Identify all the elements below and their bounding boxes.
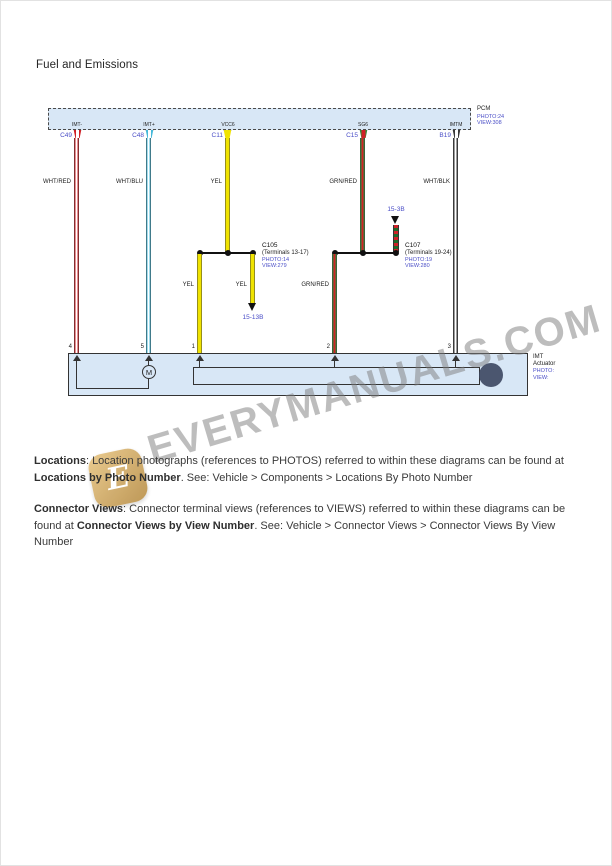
terminal-icon [452, 130, 461, 138]
terminal-icon [73, 130, 82, 138]
note-segment: : Location photographs (references to PH… [86, 455, 564, 467]
wire-yel-to-ref [250, 254, 255, 304]
wire-grn-red-dashed [393, 225, 399, 252]
manual-page: Fuel and Emissions PCM PHOTO:24 VIEW:308… [0, 0, 612, 866]
connector-c107-terminals: (Terminals 19-24) [405, 250, 452, 257]
pcm-pin-signal: IMTM [441, 122, 471, 128]
connector-c105-terminals: (Terminals 13-17) [262, 250, 309, 257]
actuator-photo-ref[interactable]: PHOTO: [533, 368, 555, 375]
wire-yel-branch [197, 254, 202, 353]
wire-yel [225, 138, 230, 252]
wire-color-label: GRN/RED [289, 282, 329, 289]
note-segment: Locations [34, 455, 86, 467]
connector-label-b19[interactable]: B19 [423, 132, 451, 140]
wire-color-label: WHT/BLU [99, 179, 143, 186]
note-connector-views: Connector Views: Connector terminal view… [34, 501, 586, 551]
connector-c107-name: C107 [405, 242, 452, 250]
pcm-pin-signal: IMT+ [134, 122, 164, 128]
connector-label-c15[interactable]: C15 [330, 132, 358, 140]
connector-c107-view-ref[interactable]: VIEW:280 [405, 263, 452, 270]
note-segment: Connector Views [34, 503, 123, 515]
internal-line [148, 379, 149, 389]
note-segment: . See: Vehicle > Components > Locations … [181, 472, 473, 484]
wire-color-label: YEL [207, 282, 247, 289]
connector-label-c11[interactable]: C11 [195, 132, 223, 140]
wire-color-label: YEL [154, 282, 194, 289]
connector-label-c49[interactable]: C49 [44, 132, 72, 140]
pcm-pin-signal: SG6 [348, 122, 378, 128]
page-ref-15-3b[interactable]: 15-3B [382, 206, 410, 214]
internal-line [76, 361, 77, 389]
actuator-name-line2: Actuator [533, 361, 555, 368]
connector-c105-name: C105 [262, 242, 309, 250]
wire-wht-blu [146, 138, 151, 353]
connector-label-c48[interactable]: C48 [116, 132, 144, 140]
junction-dot [360, 250, 366, 256]
actuator-pin-number: 2 [318, 344, 330, 351]
page-ref-arrow-icon [248, 303, 256, 311]
page-ref-15-13b[interactable]: 15-13B [234, 314, 272, 322]
note-segment: Locations by Photo Number [34, 472, 181, 484]
note-locations: Locations: Location photographs (referen… [34, 453, 586, 486]
pcm-box [48, 108, 471, 130]
wire-wht-red [74, 138, 79, 353]
wire-grn-red [360, 138, 365, 252]
pcm-label: PCM [477, 106, 490, 113]
connector-c107-label: C107 (Terminals 19-24) PHOTO:19 VIEW:280 [405, 242, 452, 270]
pcm-pin-signal: VCC6 [213, 122, 243, 128]
actuator-pin-number: 1 [183, 344, 195, 351]
wire-color-label: GRN/RED [313, 179, 357, 186]
motor-icon: M [142, 365, 156, 379]
wire-color-label: WHT/BLK [406, 179, 450, 186]
internal-line [76, 388, 149, 389]
terminal-icon [145, 130, 154, 138]
wire-color-label: YEL [178, 179, 222, 186]
pcm-pin-signal: IMT- [62, 122, 92, 128]
connector-c105-label: C105 (Terminals 13-17) PHOTO:14 VIEW:279 [262, 242, 309, 270]
wire-wht-blk [453, 138, 458, 353]
wire-color-label: WHT/RED [27, 179, 71, 186]
pcm-view-ref[interactable]: VIEW:308 [477, 120, 502, 127]
connector-c105-view-ref[interactable]: VIEW:279 [262, 263, 309, 270]
terminal-icon [359, 130, 368, 138]
note-segment: Connector Views by View Number [77, 520, 254, 532]
actuator-pin-number: 5 [132, 344, 144, 351]
actuator-pin-number: 4 [60, 344, 72, 351]
junction-dot [393, 250, 399, 256]
junction-dot [225, 250, 231, 256]
page-title: Fuel and Emissions [36, 59, 138, 71]
actuator-view-ref[interactable]: VIEW: [533, 375, 555, 382]
page-ref-arrow-icon [391, 216, 399, 224]
wire-grn-red-branch [332, 254, 337, 353]
motor-label: M [146, 368, 152, 377]
terminal-icon [223, 130, 232, 138]
